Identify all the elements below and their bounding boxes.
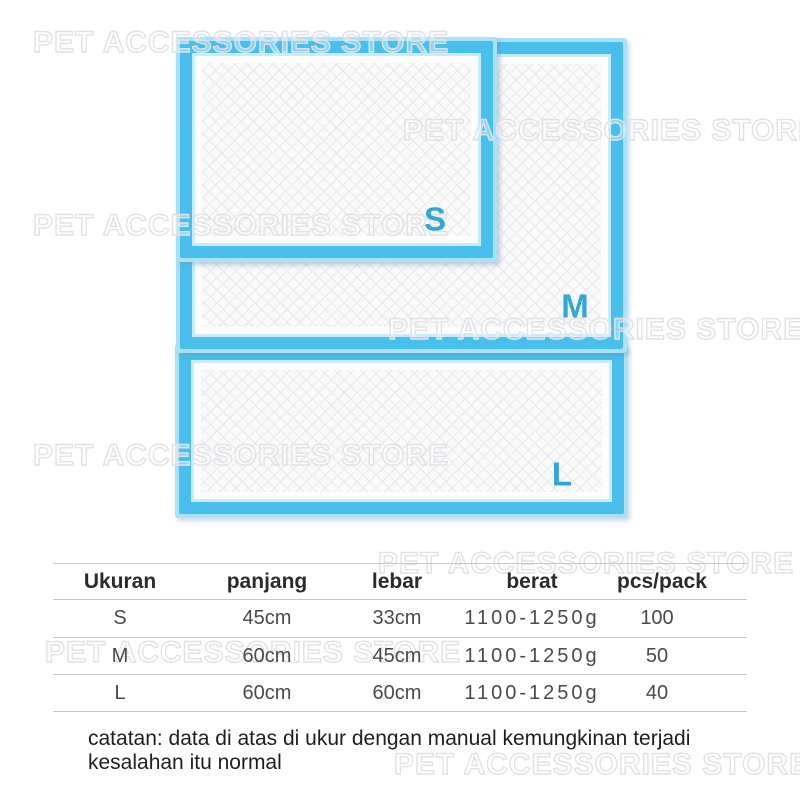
note-line-1: catatan: data di atas di ukur dengan man… — [88, 727, 690, 751]
table-cell: 1100-1250g — [447, 645, 617, 668]
table-cell: 33cm — [347, 607, 447, 630]
table-cell: 45cm — [347, 645, 447, 668]
table-cell: M — [53, 645, 187, 668]
table-header-ukuran: Ukuran — [53, 570, 187, 594]
note-line-2: kesalahan itu normal — [88, 751, 690, 775]
table-cell: 60cm — [187, 645, 347, 668]
measurement-note: catatan: data di atas di ukur dengan man… — [88, 727, 690, 775]
table-cell: 45cm — [187, 607, 347, 630]
pad-label-s: S — [424, 203, 446, 236]
table-row-m: M 60cm 45cm 1100-1250g 50 — [53, 638, 747, 675]
table-header-pcs-pack: pcs/pack — [617, 570, 697, 594]
pad-s-border — [180, 41, 493, 258]
size-table: Ukuran panjang lebar berat pcs/pack S 45… — [53, 563, 747, 712]
table-cell: 100 — [617, 607, 697, 630]
pad-l-quilted-surface — [201, 370, 602, 492]
table-cell: 1100-1250g — [447, 607, 617, 630]
table-cell: L — [53, 682, 187, 705]
pad-size-s — [176, 37, 497, 262]
table-cell: 60cm — [187, 682, 347, 705]
table-cell: 60cm — [347, 682, 447, 705]
pad-label-l: L — [552, 458, 572, 491]
table-header-lebar: lebar — [347, 570, 447, 594]
pad-label-m: M — [561, 290, 589, 323]
table-row-s: S 45cm 33cm 1100-1250g 100 — [53, 600, 747, 638]
table-cell: S — [53, 607, 187, 630]
table-header-row: Ukuran panjang lebar berat pcs/pack — [53, 564, 747, 600]
table-cell: 1100-1250g — [447, 682, 617, 705]
product-infographic: S M L PET ACCESSORIES STOREPET ACCESSORI… — [0, 0, 800, 800]
table-cell: 40 — [617, 682, 697, 705]
table-cell: 50 — [617, 645, 697, 668]
table-header-berat: berat — [447, 570, 617, 594]
table-header-panjang: panjang — [187, 570, 347, 594]
table-row-l: L 60cm 60cm 1100-1250g 40 — [53, 675, 747, 712]
